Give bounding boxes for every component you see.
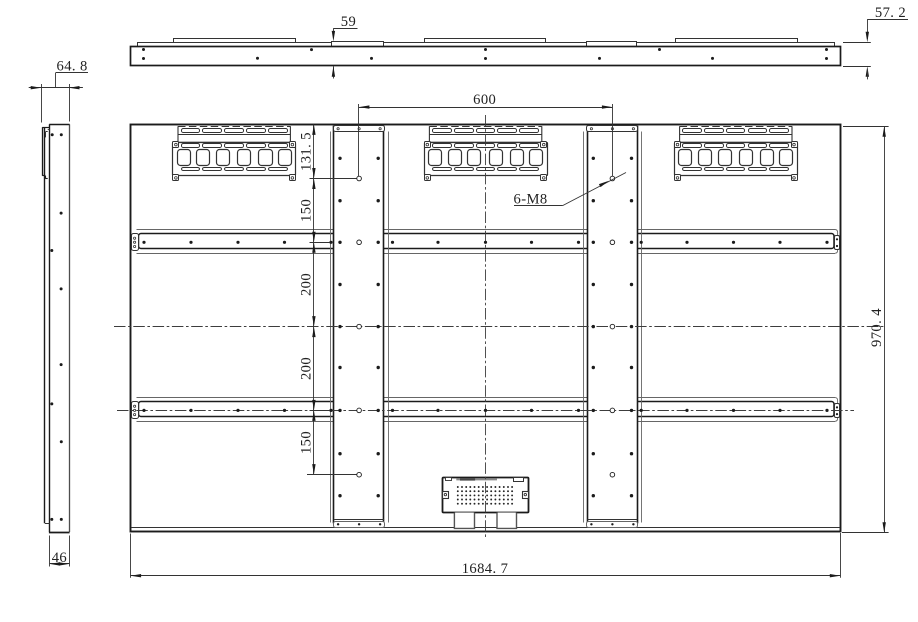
- svg-text:150: 150: [298, 199, 314, 222]
- svg-text:150: 150: [298, 431, 314, 454]
- svg-text:131. 5: 131. 5: [298, 132, 314, 171]
- svg-text:57. 2: 57. 2: [875, 5, 906, 21]
- svg-text:64. 8: 64. 8: [57, 58, 88, 74]
- svg-text:600: 600: [473, 92, 496, 108]
- svg-text:970. 4: 970. 4: [869, 308, 885, 347]
- svg-text:200: 200: [298, 357, 314, 380]
- svg-text:200: 200: [298, 273, 314, 296]
- svg-text:59: 59: [341, 14, 356, 30]
- svg-text:1684. 7: 1684. 7: [462, 561, 509, 577]
